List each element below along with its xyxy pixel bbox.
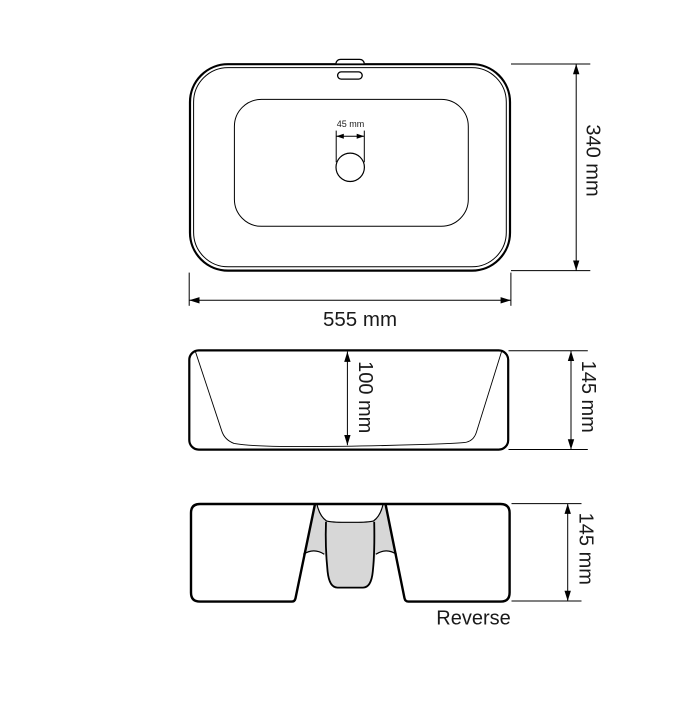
svg-text:555 mm: 555 mm xyxy=(323,308,397,331)
svg-text:100 mm: 100 mm xyxy=(354,361,376,433)
svg-text:145 mm: 145 mm xyxy=(577,361,599,433)
svg-text:145 mm: 145 mm xyxy=(575,513,597,585)
svg-text:45 mm: 45 mm xyxy=(337,119,365,129)
svg-text:Reverse: Reverse xyxy=(436,608,510,630)
svg-text:340 mm: 340 mm xyxy=(581,124,603,196)
